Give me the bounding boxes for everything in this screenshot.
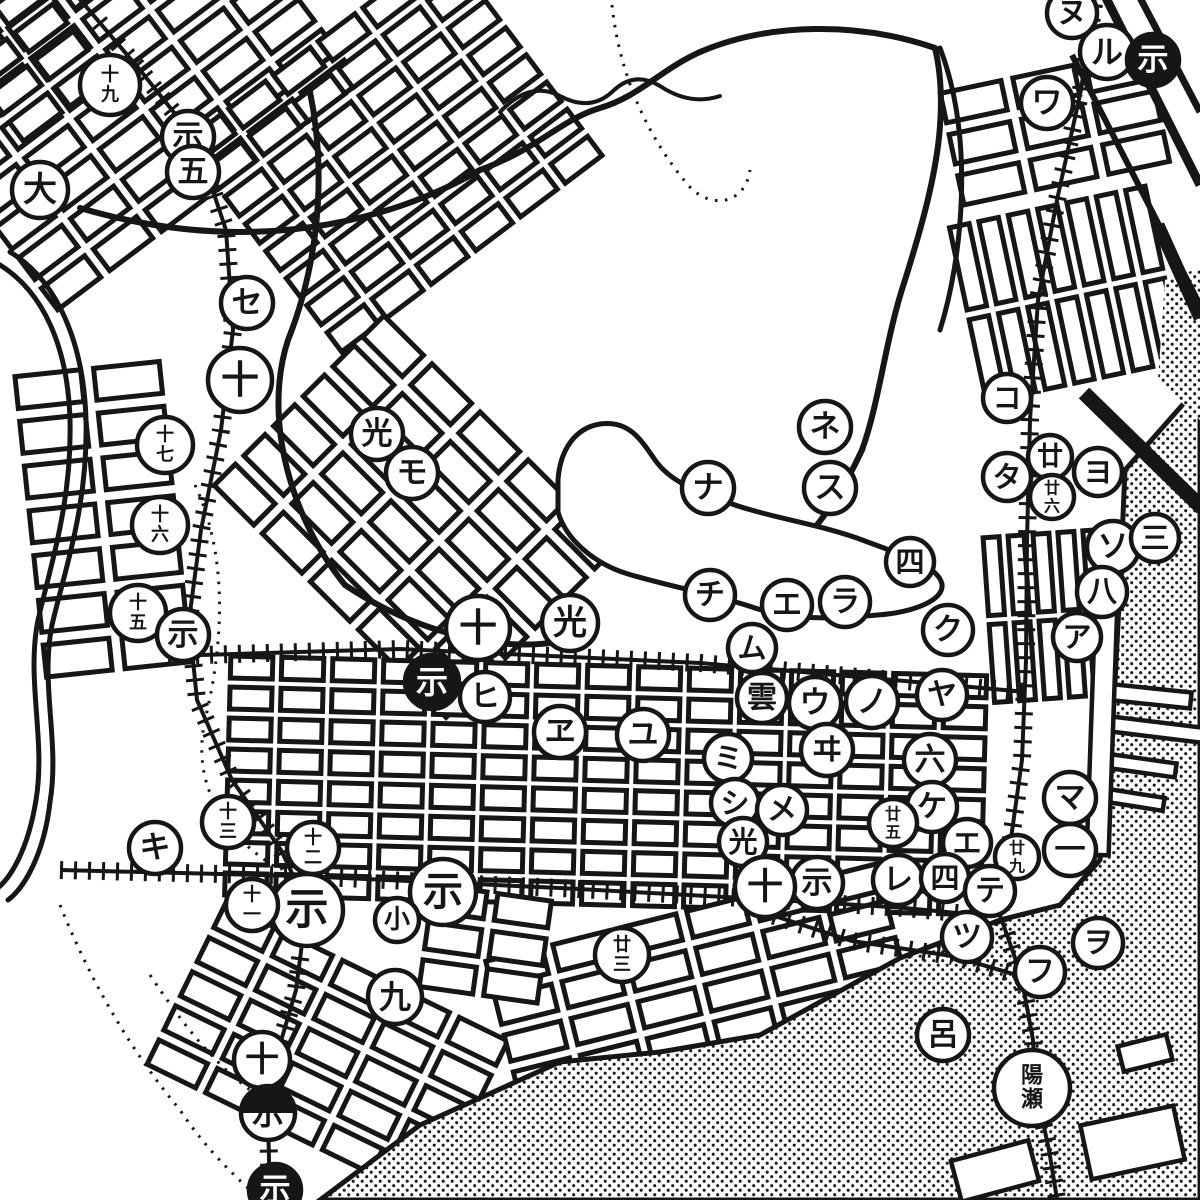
city-block — [638, 988, 701, 1028]
marker-glyph: 呂 — [928, 1017, 959, 1053]
city-block — [380, 784, 423, 807]
marker-glyph: ム — [737, 631, 766, 665]
city-block — [533, 788, 576, 811]
city-block — [587, 665, 630, 688]
map-marker: 陽瀬 — [994, 1050, 1070, 1126]
map-marker: テ — [965, 866, 1015, 916]
marker-glyph: 廿 — [1037, 442, 1063, 472]
marker-glyph: エ — [772, 588, 802, 623]
marker-glyph: チ — [695, 578, 725, 613]
city-block — [772, 954, 835, 994]
marker-glyph: 光 — [362, 416, 393, 452]
city-block — [688, 699, 731, 722]
marker-glyph: レ — [883, 863, 913, 898]
city-block — [280, 688, 323, 711]
marker-glyph: ク — [933, 613, 963, 648]
city-block — [331, 721, 374, 744]
city-block — [536, 664, 579, 687]
marker-glyph: ヲ — [1083, 926, 1113, 961]
map-marker: ウ — [789, 677, 841, 729]
map-marker: 廿六 — [1030, 475, 1074, 519]
city-block — [480, 849, 523, 872]
map-marker: 十二 — [287, 822, 339, 874]
marker-glyph: マ — [1055, 780, 1086, 816]
marker-glyph: 十 — [221, 358, 259, 402]
map-marker: 五 — [167, 146, 219, 198]
marker-glyph: 大 — [23, 170, 57, 210]
map-marker: レ — [873, 855, 923, 905]
city-block — [581, 882, 624, 905]
marker-glyph: ヨ — [1083, 455, 1112, 489]
map-marker: ク — [923, 605, 973, 655]
city-block — [482, 787, 525, 810]
city-block — [43, 638, 112, 677]
marker-glyph: 四 — [930, 861, 959, 895]
marker-glyph: フ — [1025, 955, 1055, 990]
marker-glyph: キ — [140, 830, 171, 866]
marker-glyph: 十二 — [304, 827, 322, 869]
marker-glyph: コ — [992, 381, 1021, 415]
marker-glyph: 廿九 — [1008, 839, 1025, 876]
road — [862, 48, 941, 450]
marker-glyph: 廿六 — [1044, 479, 1060, 516]
map-marker: ツ — [942, 912, 992, 962]
map-marker: 十 — [735, 857, 795, 917]
city-block — [331, 690, 374, 713]
marker-glyph: ヰ — [812, 732, 843, 768]
city-block — [278, 781, 321, 804]
marker-glyph: 四 — [895, 545, 924, 579]
city-block — [684, 854, 727, 877]
map-marker: 十七 — [137, 417, 193, 473]
map-marker: 三 — [1131, 514, 1179, 562]
marker-glyph: ヌ — [1057, 0, 1087, 31]
marker-glyph: 廿三 — [613, 935, 631, 976]
map-marker: 呂 — [917, 1009, 969, 1061]
city-block — [705, 971, 768, 1011]
marker-glyph: 廿五 — [885, 805, 901, 842]
map-marker: 十 — [234, 1032, 290, 1088]
marker-glyph: 十五 — [129, 592, 147, 634]
marker-glyph: ソ — [1098, 529, 1129, 565]
city-block — [1033, 533, 1054, 612]
marker-glyph: ネ — [810, 409, 841, 445]
marker-glyph: ヤ — [927, 678, 957, 713]
city-block — [379, 815, 422, 838]
marker-glyph: 示 — [802, 865, 833, 901]
city-block — [229, 687, 272, 710]
city-block — [20, 414, 89, 453]
city-block — [382, 722, 425, 745]
city-block — [329, 783, 372, 806]
map-marker: セ — [221, 277, 273, 329]
city-block — [483, 756, 526, 779]
map-marker: 示 — [249, 1164, 301, 1200]
map-marker: 廿 — [1028, 435, 1072, 479]
city-block — [280, 719, 323, 742]
city-block — [432, 754, 475, 777]
city-block — [430, 816, 473, 839]
block-grid — [950, 186, 1183, 402]
map-marker: 示 — [241, 1086, 295, 1140]
map-marker: ヰ — [801, 724, 853, 776]
marker-glyph: 陽瀬 — [1021, 1064, 1043, 1113]
marker-glyph: モ — [397, 455, 428, 491]
marker-glyph: タ — [992, 460, 1021, 494]
map-marker: ム — [728, 624, 776, 672]
marker-glyph: 示 — [286, 885, 329, 935]
marker-glyph: メ — [767, 793, 797, 828]
city-block — [494, 894, 551, 928]
marker-glyph: 光 — [728, 825, 757, 859]
city-block — [419, 960, 476, 994]
map-marker: ル — [1080, 25, 1134, 79]
city-block — [431, 785, 474, 808]
city-block — [571, 1004, 634, 1044]
map-marker: タ — [983, 453, 1031, 501]
map-marker: 小 — [375, 898, 419, 942]
city-block — [983, 537, 1004, 616]
city-block — [484, 969, 541, 1003]
map-marker: 九 — [368, 970, 422, 1024]
city-block — [279, 750, 322, 773]
marker-glyph: 示 — [252, 1094, 284, 1132]
map-marker: 示 — [791, 857, 843, 909]
city-block — [481, 818, 524, 841]
city-block — [583, 820, 626, 843]
map-marker: 八 — [1077, 567, 1127, 617]
marker-glyph: ミ — [713, 741, 742, 775]
city-block — [689, 668, 732, 691]
marker-glyph: 示 — [423, 869, 463, 915]
marker-glyph: 五 — [178, 154, 209, 190]
city-block — [634, 822, 677, 845]
marker-glyph: 六 — [915, 742, 946, 778]
marker-glyph: ナ — [693, 470, 724, 506]
map-marker: ヒ — [460, 672, 510, 722]
map-marker: 示 — [405, 655, 459, 709]
city-block — [958, 163, 1025, 205]
map-marker: ミ — [704, 734, 752, 782]
marker-glyph: ケ — [917, 790, 947, 825]
marker-glyph: ツ — [952, 920, 982, 955]
marker-glyph: 三 — [1140, 521, 1169, 555]
city-block — [585, 758, 628, 781]
marker-glyph: 十九 — [100, 64, 119, 106]
marker-glyph: 光 — [553, 603, 587, 643]
city-block — [638, 667, 681, 690]
map-marker: 十 — [208, 348, 272, 412]
city-block — [582, 851, 625, 874]
map-marker: 四 — [921, 854, 969, 902]
marker-glyph: テ — [975, 874, 1005, 909]
marker-glyph: 小 — [384, 905, 410, 935]
hill-outline — [558, 423, 942, 617]
map-marker: 廿三 — [595, 928, 649, 982]
map-marker: 示 — [157, 609, 209, 661]
city-block — [484, 725, 527, 748]
map-marker: 十一 — [226, 879, 278, 931]
map-marker: 四 — [886, 538, 934, 586]
marker-glyph: 雲 — [747, 681, 777, 716]
map-marker: ア — [1053, 613, 1101, 661]
map-marker: ナ — [682, 462, 734, 514]
old-map-scan: 十九示五大セ十十七十六十五示光モネスナ四コタ廿廿六ヨソ三八アチエラム十光クヤノウ… — [0, 0, 1200, 1200]
city-block — [531, 850, 574, 873]
marker-glyph: ル — [1091, 33, 1123, 71]
contour-dash — [612, 5, 750, 201]
marker-glyph: ワ — [1032, 85, 1063, 121]
map-marker: モ — [386, 447, 438, 499]
map-marker: ワ — [1021, 77, 1073, 129]
city-block — [504, 1021, 567, 1061]
map-marker: チ — [685, 570, 735, 620]
marker-glyph: ラ — [830, 585, 860, 620]
map-marker: コ — [983, 374, 1031, 422]
map-marker: マ — [1044, 772, 1096, 824]
map-marker: ヤ — [917, 670, 967, 720]
map-marker: ヲ — [1073, 918, 1123, 968]
city-block — [38, 593, 107, 632]
city-block — [433, 723, 476, 746]
marker-glyph: 十六 — [151, 504, 169, 546]
city-block — [534, 757, 577, 780]
city-block — [332, 659, 375, 682]
marker-glyph: ユ — [628, 717, 659, 753]
marker-glyph: 示 — [168, 617, 199, 653]
marker-glyph: 示 — [1138, 42, 1169, 78]
marker-glyph: ス — [815, 470, 846, 506]
city-block — [635, 791, 678, 814]
map-marker: ユ — [617, 709, 669, 761]
city-block — [584, 789, 627, 812]
marker-glyph: セ — [232, 285, 263, 321]
map-marker: 廿五 — [869, 799, 917, 847]
city-block — [489, 931, 546, 965]
hill-pond-outline — [558, 423, 942, 617]
map-marker: 光 — [542, 595, 598, 651]
marker-glyph: 十一 — [243, 884, 261, 926]
city-block — [633, 853, 676, 876]
marker-glyph: ア — [1062, 620, 1091, 654]
map-marker: 十九 — [80, 55, 140, 115]
map-marker: ネ — [799, 401, 851, 453]
map-marker: ス — [804, 462, 856, 514]
map-marker: ヱ — [534, 706, 586, 758]
marker-glyph: 示 — [260, 1172, 291, 1200]
marker-glyph: ヒ — [470, 680, 500, 715]
map-marker: フ — [1015, 947, 1065, 997]
city-block — [696, 934, 759, 974]
marker-glyph: 十 — [245, 1040, 279, 1080]
map-marker: 六 — [904, 734, 956, 786]
city-block — [378, 846, 421, 869]
marker-glyph: 十三 — [219, 801, 237, 843]
marker-glyph: 十 — [747, 867, 783, 908]
marker-glyph: ヱ — [545, 714, 576, 750]
map-marker: 一 — [1044, 824, 1096, 876]
map-marker: ラ — [820, 577, 870, 627]
marker-glyph: 一 — [1055, 832, 1086, 868]
marker-glyph: 示 — [416, 663, 448, 701]
marker-glyph: 八 — [1087, 575, 1118, 610]
map-canvas: 十九示五大セ十十七十六十五示光モネスナ四コタ廿廿六ヨソ三八アチエラム十光クヤノウ… — [0, 0, 1200, 1200]
map-marker: 十六 — [132, 497, 188, 553]
map-marker: 示 — [1127, 34, 1179, 86]
map-marker: 雲 — [737, 673, 787, 723]
city-block — [229, 718, 272, 741]
city-block — [94, 361, 163, 400]
city-block — [381, 753, 424, 776]
marker-glyph: ウ — [800, 685, 831, 721]
marker-glyph: 九 — [379, 978, 411, 1016]
marker-glyph: ノ — [857, 684, 888, 720]
map-marker: エ — [762, 580, 812, 630]
city-block — [425, 922, 482, 956]
marker-glyph: シ — [720, 786, 749, 820]
map-marker: 示 — [271, 874, 343, 946]
map-marker: 十 — [446, 596, 510, 660]
map-marker: ノ — [846, 676, 898, 728]
map-marker: 十三 — [202, 796, 254, 848]
city-block — [281, 657, 324, 680]
map-marker: 大 — [12, 162, 68, 218]
city-block — [532, 819, 575, 842]
city-block — [330, 752, 373, 775]
marker-glyph: 十 — [459, 606, 497, 650]
map-marker: ヨ — [1074, 448, 1122, 496]
marker-glyph: 十七 — [156, 424, 174, 466]
map-marker: キ — [129, 822, 181, 874]
city-block — [15, 370, 84, 409]
